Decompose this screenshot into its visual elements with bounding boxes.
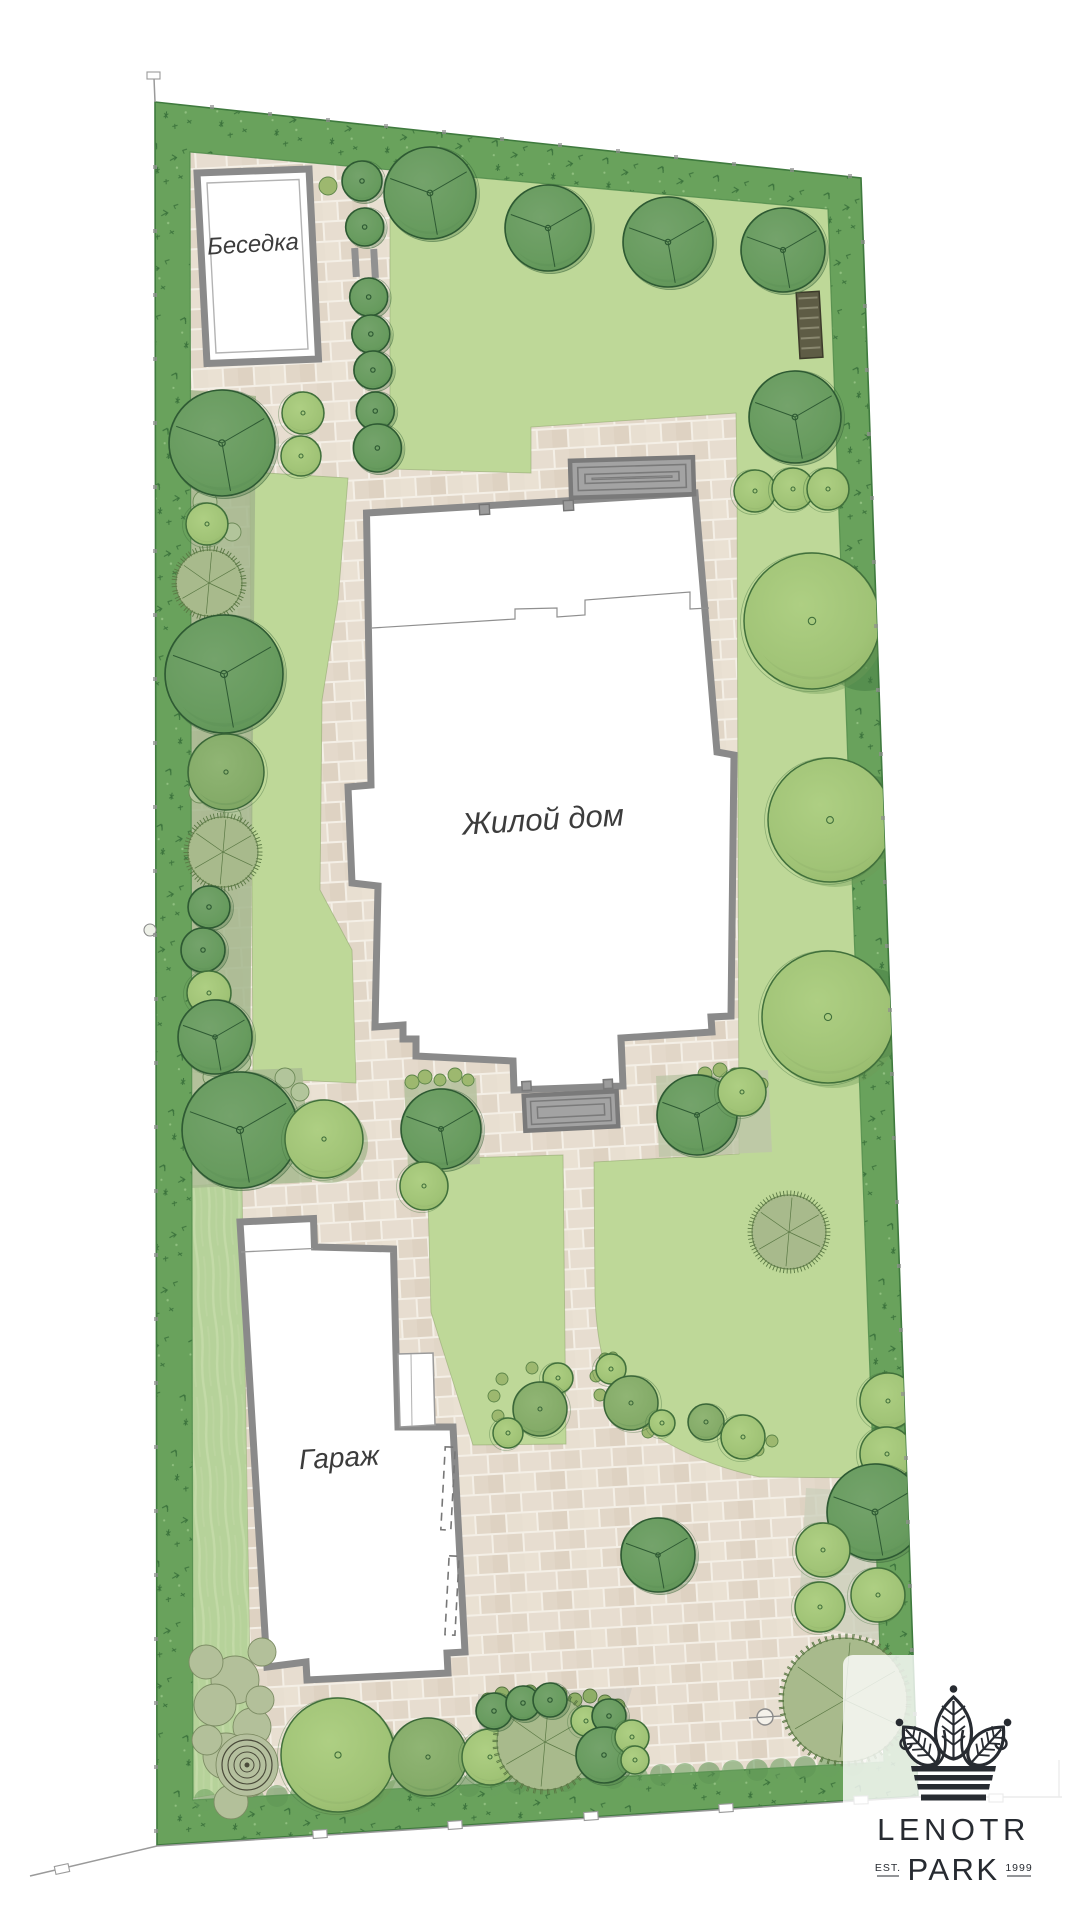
svg-text:Беседка: Беседка	[206, 228, 299, 260]
svg-text:1999: 1999	[1005, 1862, 1032, 1874]
svg-text:EST.: EST.	[875, 1862, 901, 1874]
svg-text:Гараж: Гараж	[298, 1440, 382, 1476]
svg-text:PARK: PARK	[907, 1852, 999, 1887]
svg-text:LENOTR: LENOTR	[877, 1812, 1030, 1847]
